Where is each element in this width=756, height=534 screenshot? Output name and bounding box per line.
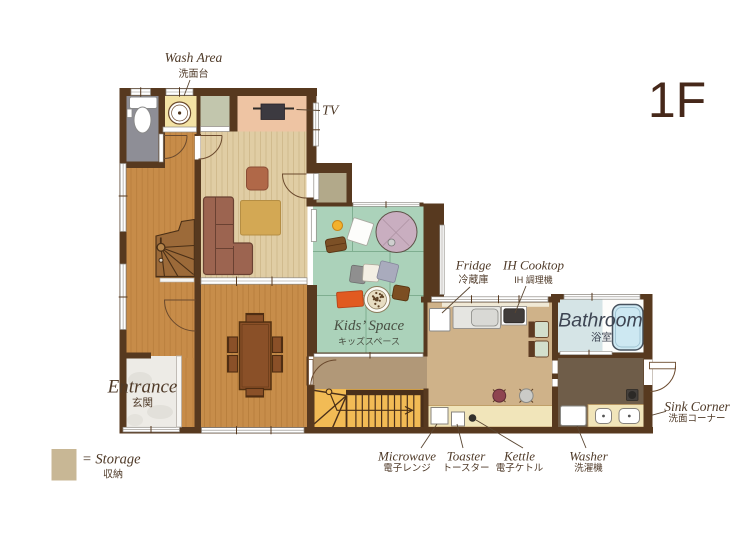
svg-text:Kids’ Space: Kids’ Space xyxy=(333,318,405,334)
svg-text:玄関: 玄関 xyxy=(132,396,153,409)
svg-text:電子レンジ: 電子レンジ xyxy=(383,463,431,474)
svg-text:浴室: 浴室 xyxy=(591,331,612,344)
svg-text:収納: 収納 xyxy=(103,468,123,481)
svg-text:Bathroom: Bathroom xyxy=(558,310,643,332)
svg-text:IH Cooktop: IH Cooktop xyxy=(502,258,565,273)
svg-text:電子ケトル: 電子ケトル xyxy=(496,463,544,474)
svg-text:= Storage: = Storage xyxy=(82,452,141,468)
svg-text:Wash Area: Wash Area xyxy=(165,50,223,65)
svg-text:冷蔵庫: 冷蔵庫 xyxy=(459,273,489,286)
svg-text:Kettle: Kettle xyxy=(503,449,535,464)
svg-text:Toaster: Toaster xyxy=(447,449,486,464)
svg-text:TV: TV xyxy=(322,104,340,119)
svg-text:洗面コーナー: 洗面コーナー xyxy=(668,413,725,425)
svg-text:トースター: トースター xyxy=(442,463,489,474)
svg-text:1F: 1F xyxy=(648,72,706,128)
svg-text:Fridge: Fridge xyxy=(455,258,492,273)
svg-text:Washer: Washer xyxy=(569,449,608,464)
svg-text:Microwave: Microwave xyxy=(377,449,436,464)
svg-text:洗濯機: 洗濯機 xyxy=(574,462,603,474)
svg-text:Entrance: Entrance xyxy=(107,377,178,398)
svg-text:Sink Corner: Sink Corner xyxy=(664,399,730,414)
svg-text:洗面台: 洗面台 xyxy=(179,67,209,80)
svg-text:IH 調理機: IH 調理機 xyxy=(514,274,553,285)
svg-text:キッズスペース: キッズスペース xyxy=(338,336,400,347)
